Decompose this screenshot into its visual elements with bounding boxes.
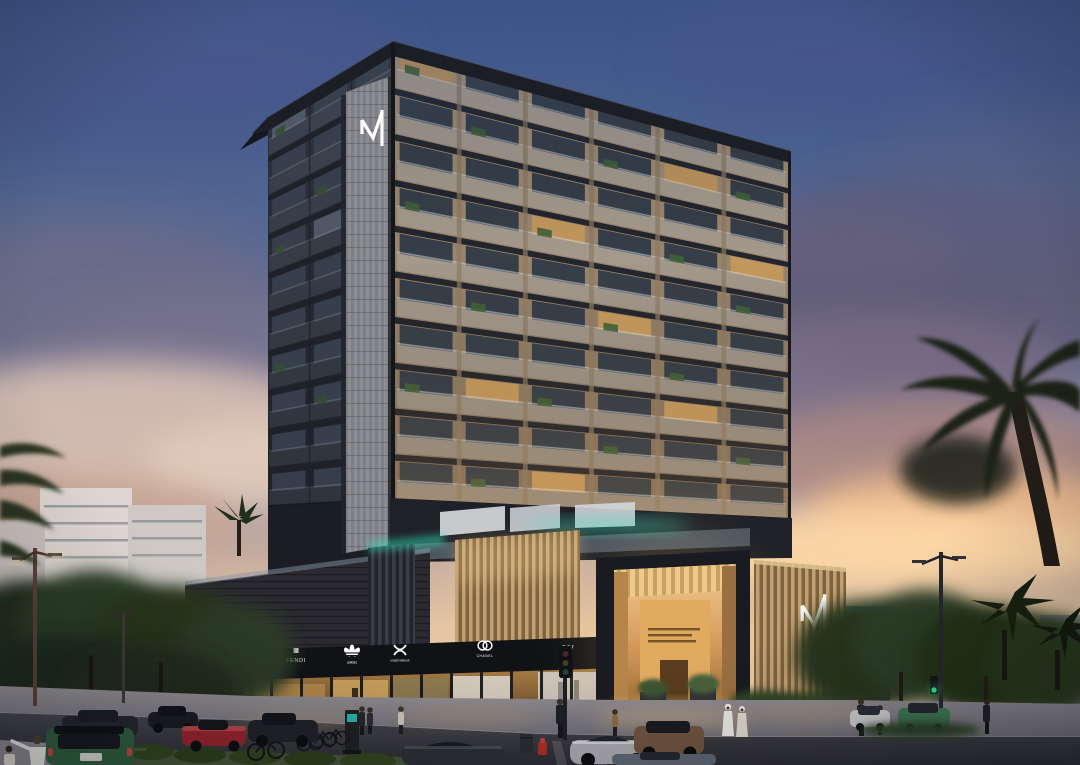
- vignette: [0, 0, 1080, 765]
- rendering-canvas: FENDI adidas UNDER ARMOUR CHANEL LV: [0, 0, 1080, 765]
- scene: FENDI adidas UNDER ARMOUR CHANEL LV: [0, 0, 1080, 765]
